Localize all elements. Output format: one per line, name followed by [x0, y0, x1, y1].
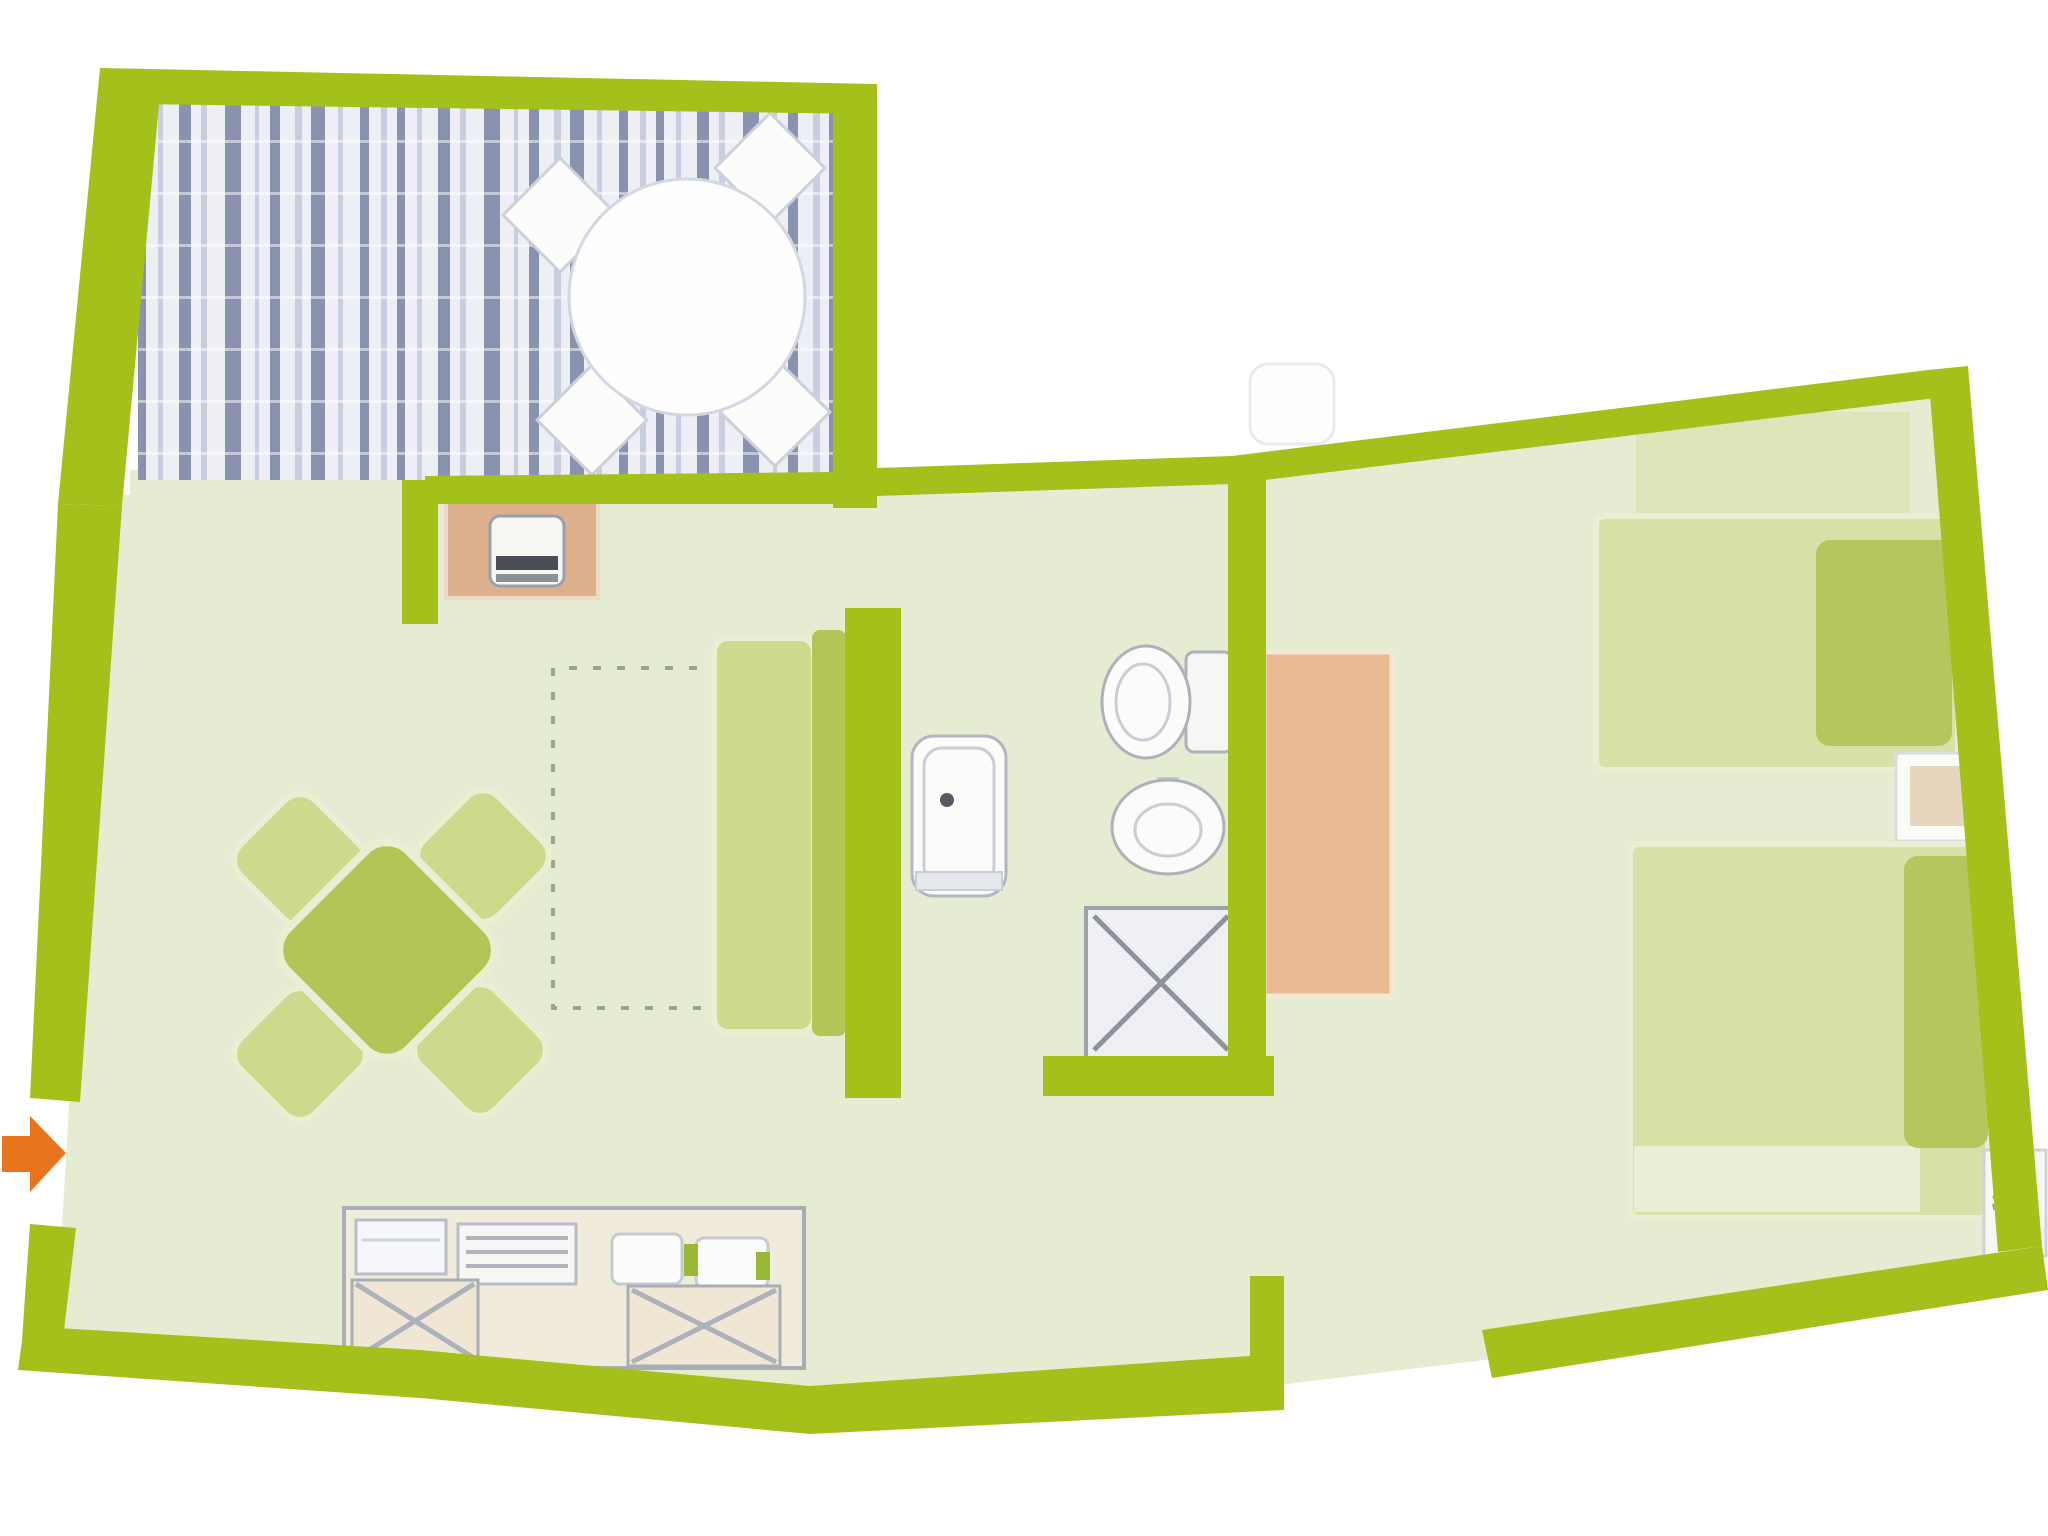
- wall-terrace-bottom-stub: [402, 480, 438, 624]
- deck-board-line: [158, 92, 163, 480]
- deck-board-line: [397, 92, 405, 480]
- sofa-back: [812, 630, 846, 1036]
- deck-board-line: [179, 92, 191, 480]
- deck-board-line: [514, 92, 518, 480]
- wall-bottom-door-stub: [1250, 1276, 1284, 1360]
- stove-grate-light: [496, 574, 558, 582]
- deck-cross-line: [138, 452, 838, 455]
- deck-board-line: [295, 92, 302, 480]
- kitchen-sink-left: [612, 1234, 682, 1284]
- wall-bathroom-left: [845, 608, 901, 1098]
- entrance-arrow: [2, 1116, 66, 1192]
- deck-board-line: [381, 92, 387, 480]
- terrace-round-table: [569, 179, 805, 415]
- bathtub-step: [916, 872, 1002, 890]
- deck-board-line: [270, 92, 280, 480]
- wall-bathroom-bedroom-divider: [1228, 474, 1266, 1060]
- bed-2-blanket-fold: [1634, 1146, 1920, 1212]
- deck-board-line: [225, 92, 241, 480]
- kitchen-faucet-accent: [684, 1244, 698, 1276]
- deck-board-line: [438, 92, 450, 480]
- deck-cross-line: [138, 140, 838, 143]
- kitchen-appliance-left: [356, 1220, 446, 1274]
- wall-terrace-bottom: [425, 472, 835, 504]
- deck-board-line: [417, 92, 422, 480]
- deck-board-line: [311, 92, 325, 480]
- deck-board-line: [460, 92, 466, 480]
- exterior-mat: [1250, 364, 1334, 444]
- bed-1-pillow: [1816, 540, 1952, 746]
- floor-plan-svg: [0, 0, 2048, 1536]
- deck-board-line: [255, 92, 259, 480]
- deck-board-line: [201, 92, 207, 480]
- deck-board-line: [484, 92, 500, 480]
- toilet-tank: [1186, 652, 1232, 752]
- stove-grate-dark: [496, 556, 558, 570]
- sofa-seat: [714, 638, 814, 1032]
- nightstand-between-beds-top: [1910, 766, 1968, 826]
- floor-plan: [0, 0, 2048, 1536]
- wall-bathroom-bottom: [1043, 1056, 1274, 1096]
- deck-board-line: [338, 92, 343, 480]
- kitchen-plant-accent: [756, 1252, 770, 1280]
- deck-board-line: [360, 92, 369, 480]
- wall-terrace-right: [833, 84, 877, 508]
- wardrobe: [1264, 652, 1392, 996]
- bathtub-drain: [940, 793, 954, 807]
- sink-basin: [1112, 780, 1224, 874]
